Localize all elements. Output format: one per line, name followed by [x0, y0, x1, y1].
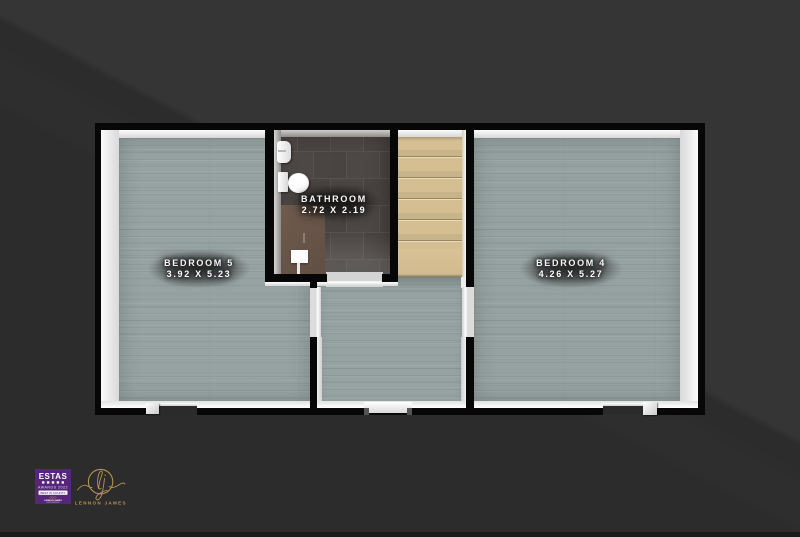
- svg-text:HUNTINGDON: HUNTINGDON: [47, 502, 60, 504]
- svg-text:AWARDS 2022: AWARDS 2022: [38, 486, 68, 490]
- svg-text:BEST IN COUNTY: BEST IN COUNTY: [40, 491, 65, 495]
- svg-text:LENNON JAMES: LENNON JAMES: [75, 500, 127, 505]
- svg-text:ESTAS: ESTAS: [39, 472, 68, 481]
